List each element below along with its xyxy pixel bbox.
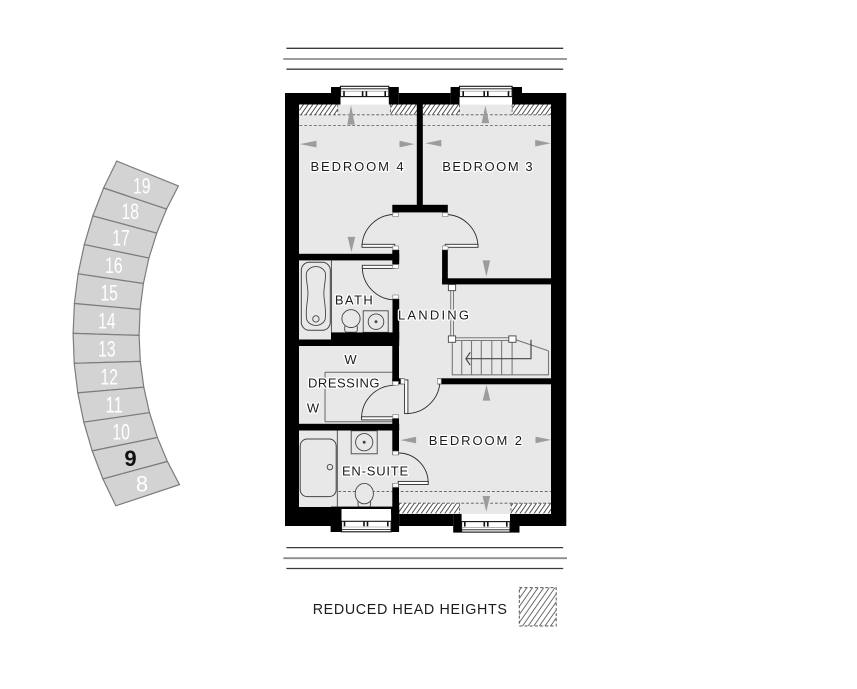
svg-text:15: 15: [100, 281, 118, 306]
svg-text:11: 11: [105, 392, 123, 417]
svg-text:9: 9: [124, 446, 136, 471]
svg-text:W: W: [344, 352, 357, 367]
svg-text:LANDING: LANDING: [398, 308, 471, 323]
svg-text:DRESSING: DRESSING: [308, 375, 380, 390]
svg-text:BEDROOM 4: BEDROOM 4: [310, 159, 405, 174]
svg-text:16: 16: [105, 253, 123, 278]
svg-text:REDUCED HEAD HEIGHTS: REDUCED HEAD HEIGHTS: [313, 602, 508, 618]
svg-text:BEDROOM 3: BEDROOM 3: [442, 159, 534, 174]
svg-text:W: W: [307, 401, 320, 416]
svg-text:18: 18: [122, 199, 140, 224]
svg-text:12: 12: [101, 365, 119, 390]
svg-text:BATH: BATH: [335, 293, 374, 308]
svg-text:8: 8: [136, 472, 148, 497]
svg-text:BEDROOM 2: BEDROOM 2: [429, 433, 524, 448]
svg-text:10: 10: [112, 420, 130, 445]
svg-text:19: 19: [133, 174, 151, 199]
svg-text:EN-SUITE: EN-SUITE: [342, 464, 409, 479]
svg-text:14: 14: [98, 309, 116, 334]
svg-text:17: 17: [112, 226, 130, 251]
svg-text:13: 13: [98, 337, 116, 362]
